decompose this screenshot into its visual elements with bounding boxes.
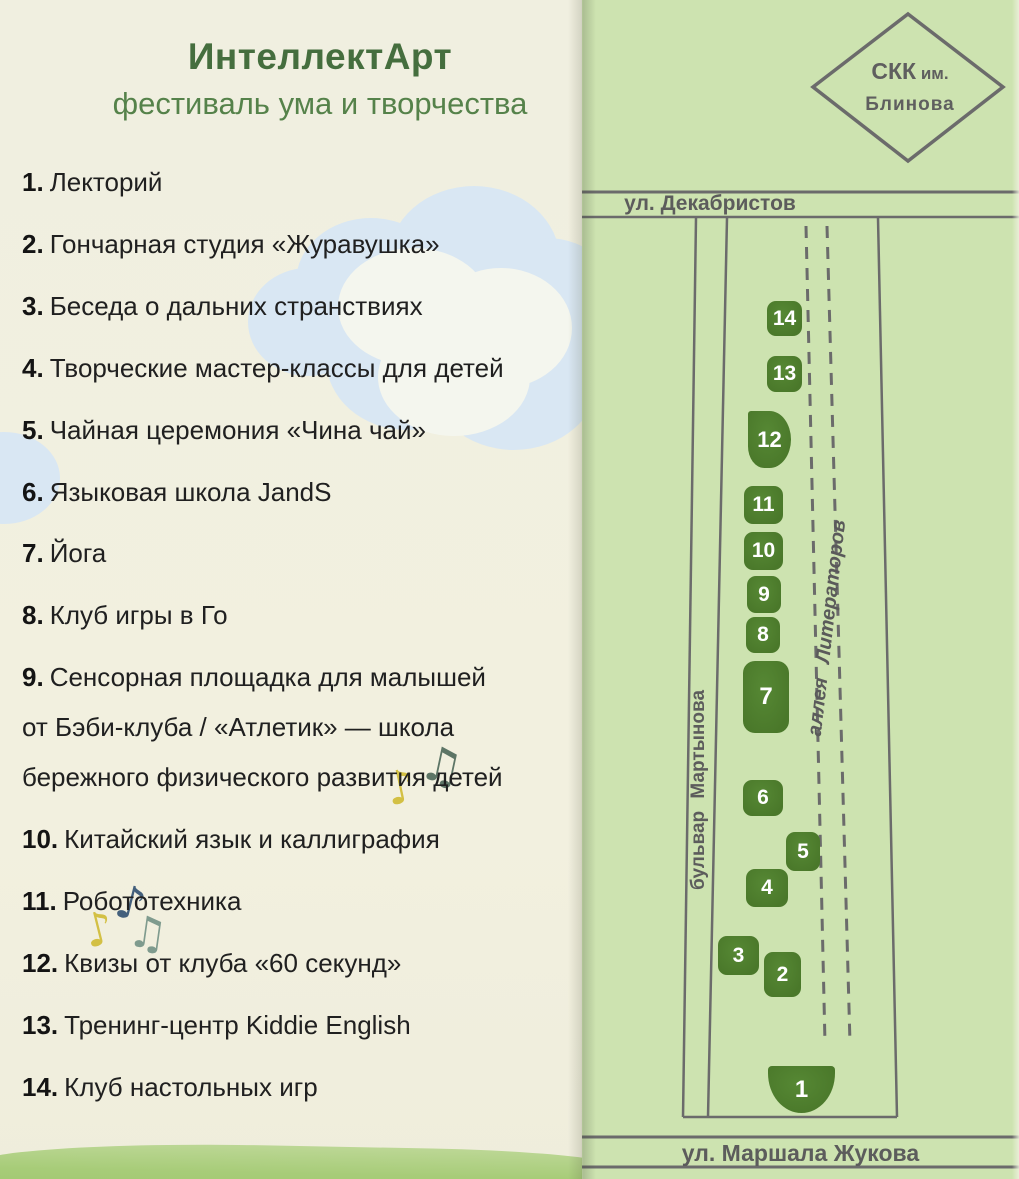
venue-number: 7. bbox=[22, 538, 44, 568]
boulevard-line bbox=[683, 218, 696, 1117]
venue-number: 13. bbox=[22, 1010, 58, 1040]
grass-decoration bbox=[0, 1140, 582, 1179]
venue-number: 5. bbox=[22, 415, 44, 445]
venue-number: 3. bbox=[22, 291, 44, 321]
venue-list-panel: ♪ ♫ ♪ ♪ ♫ ИнтеллектАрт фестиваль ума и т… bbox=[0, 0, 582, 1179]
page-subtitle: фестиваль ума и творчества bbox=[50, 86, 582, 122]
venue-number: 14. bbox=[22, 1072, 58, 1102]
venue-label: Тренинг-центр Kiddie English bbox=[64, 1010, 411, 1040]
map-marker-12: 12 bbox=[748, 411, 791, 468]
street-label-zhukova: ул. Маршала Жукова bbox=[582, 1139, 1019, 1167]
venue-label: Гончарная студия «Журавушка» bbox=[50, 229, 440, 259]
map-marker-8: 8 bbox=[746, 617, 780, 653]
venue-label: Квизы от клуба «60 секунд» bbox=[64, 948, 401, 978]
map-marker-9: 9 bbox=[747, 576, 781, 613]
map-marker-4: 4 bbox=[746, 869, 788, 907]
map-marker-6: 6 bbox=[743, 780, 783, 816]
venue-label: Китайский язык и каллиграфия bbox=[64, 824, 440, 854]
venue-item-10: 10.Китайский язык и каллиграфия bbox=[22, 815, 574, 865]
page-edge-highlight bbox=[1012, 0, 1019, 1179]
venue-item-8: 8.Клуб игры в Го bbox=[22, 591, 574, 641]
venue-item-13: 13.Тренинг-центр Kiddie English bbox=[22, 1001, 574, 1051]
venue-label: Робототехника bbox=[63, 886, 242, 916]
street-label-martynova: бульвар Мартынова bbox=[686, 680, 712, 900]
venue-item-2: 2.Гончарная студия «Журавушка» bbox=[22, 220, 574, 270]
page-title: ИнтеллектАрт bbox=[50, 36, 582, 78]
venue-number: 6. bbox=[22, 477, 44, 507]
festival-poster: ♪ ♫ ♪ ♪ ♫ ИнтеллектАрт фестиваль ума и т… bbox=[0, 0, 1019, 1179]
venue-label: Клуб игры в Го bbox=[50, 600, 228, 630]
venue-item-9: 9.Сенсорная площадка для малышей от Бэби… bbox=[22, 653, 574, 803]
venue-label: Беседа о дальних странствиях bbox=[50, 291, 423, 321]
venue-label: Творческие мастер-классы для детей bbox=[50, 353, 504, 383]
venue-item-3: 3.Беседа о дальних странствиях bbox=[22, 282, 574, 332]
venue-number: 12. bbox=[22, 948, 58, 978]
map-marker-3: 3 bbox=[718, 936, 759, 975]
landmark-name-line1: СКК им. bbox=[820, 54, 1000, 90]
map-marker-10: 10 bbox=[744, 532, 783, 570]
map-marker-14: 14 bbox=[767, 301, 802, 336]
venue-item-7: 7.Йога bbox=[22, 529, 574, 579]
landmark-name-main: СКК bbox=[871, 58, 916, 84]
map-marker-7: 7 bbox=[743, 661, 789, 733]
venue-item-4: 4.Творческие мастер-классы для детей bbox=[22, 344, 574, 394]
venue-label: Чайная церемония «Чина чай» bbox=[50, 415, 426, 445]
venue-number: 1. bbox=[22, 167, 44, 197]
venue-number: 11. bbox=[22, 886, 57, 916]
landmark-name-line2: Блинова bbox=[820, 90, 1000, 119]
map-marker-13: 13 bbox=[767, 356, 802, 392]
venue-item-5: 5.Чайная церемония «Чина чай» bbox=[22, 406, 574, 456]
landmark-label: СКК им. Блинова bbox=[820, 54, 1000, 119]
venue-label: Лекторий bbox=[50, 167, 163, 197]
venue-number: 4. bbox=[22, 353, 44, 383]
venue-number: 9. bbox=[22, 662, 44, 692]
landmark-name-suffix: им. bbox=[916, 64, 948, 83]
street-label-dekabristov: ул. Декабристов bbox=[610, 191, 810, 217]
venue-item-11: 11.Робототехника bbox=[22, 877, 574, 927]
map-roads-graphic bbox=[582, 0, 1019, 1179]
boulevard-line bbox=[708, 218, 727, 1117]
venue-number: 10. bbox=[22, 824, 58, 854]
block-right-line bbox=[878, 218, 897, 1117]
map-marker-2: 2 bbox=[764, 952, 801, 997]
venue-item-6: 6.Языковая школа JandS bbox=[22, 468, 574, 518]
venue-number: 2. bbox=[22, 229, 44, 259]
map-marker-11: 11 bbox=[744, 486, 783, 524]
venue-number: 8. bbox=[22, 600, 44, 630]
venue-list: 1.Лекторий 2.Гончарная студия «Журавушка… bbox=[22, 158, 574, 1125]
venue-item-14: 14.Клуб настольных игр bbox=[22, 1063, 574, 1113]
map-panel: СКК им. Блинова ул. Декабристов ул. Марш… bbox=[582, 0, 1019, 1179]
venue-label: Клуб настольных игр bbox=[64, 1072, 318, 1102]
venue-label: Сенсорная площадка для малышей от Бэби-к… bbox=[22, 662, 503, 792]
venue-item-1: 1.Лекторий bbox=[22, 158, 574, 208]
map-marker-5: 5 bbox=[786, 832, 820, 871]
venue-item-12: 12.Квизы от клуба «60 секунд» bbox=[22, 939, 574, 989]
venue-label: Йога bbox=[50, 538, 107, 568]
venue-label: Языковая школа JandS bbox=[50, 477, 332, 507]
